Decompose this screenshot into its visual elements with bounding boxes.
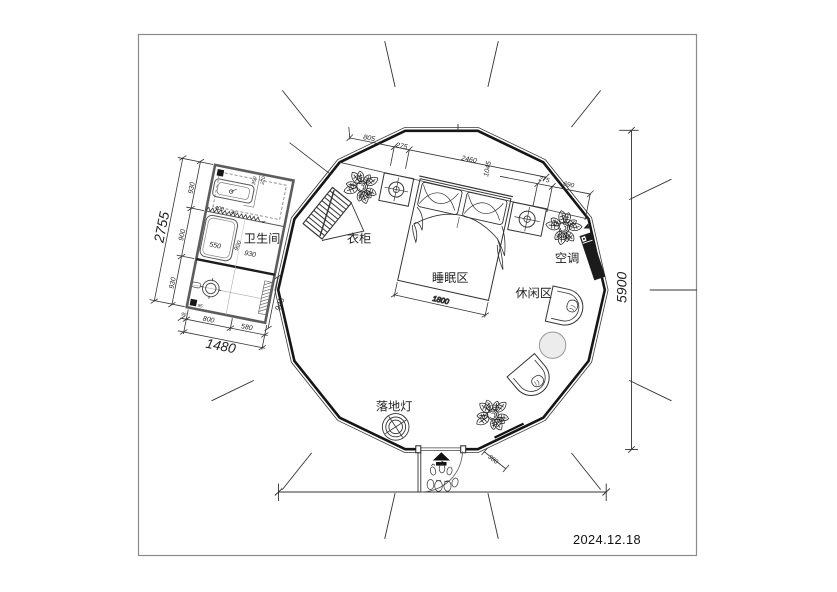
svg-text:5900: 5900 xyxy=(614,272,630,303)
svg-text:2024.12.18: 2024.12.18 xyxy=(573,532,641,547)
